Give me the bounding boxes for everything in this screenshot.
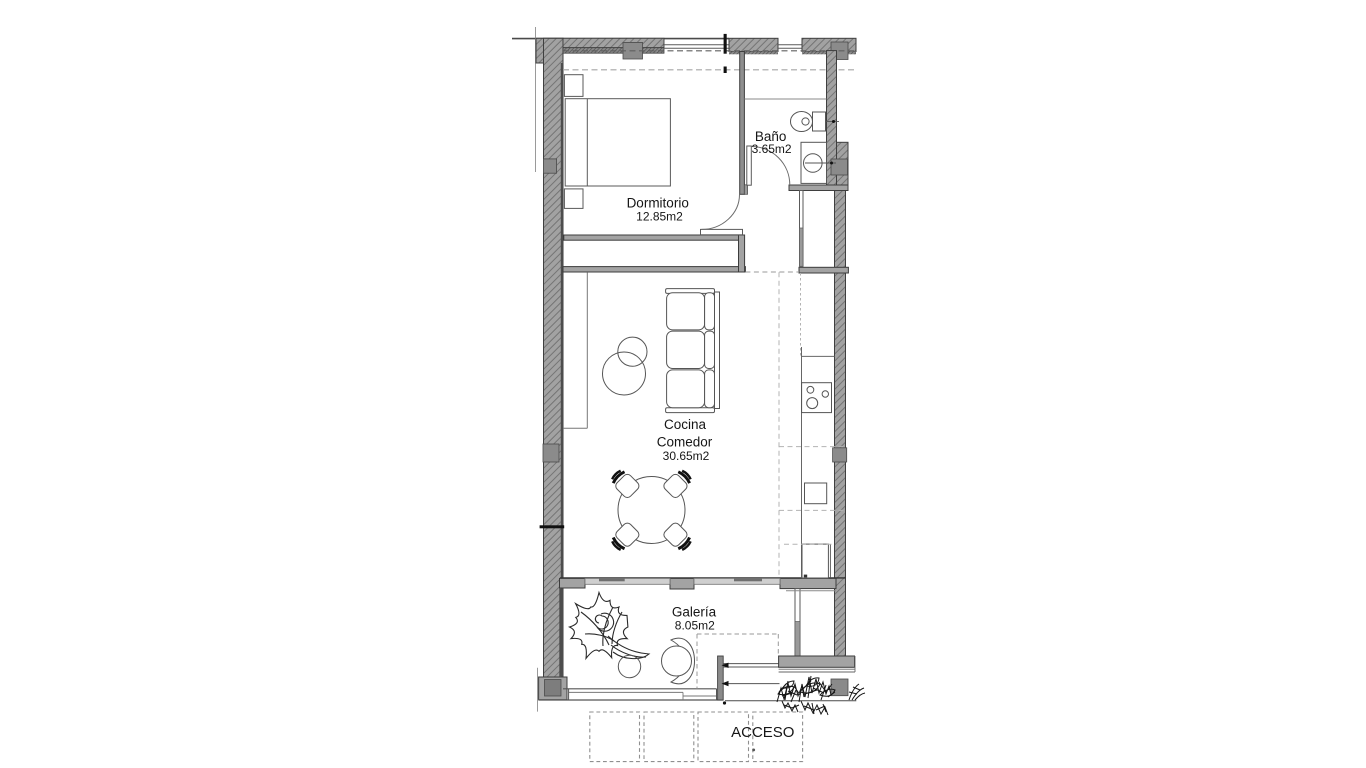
svg-text:Cocina: Cocina [664, 417, 707, 432]
svg-text:Comedor: Comedor [657, 435, 713, 450]
svg-text:8.05m2: 8.05m2 [675, 619, 715, 633]
svg-text:12.85m2: 12.85m2 [636, 209, 683, 223]
svg-text:Galería: Galería [672, 604, 717, 619]
svg-text:3.65m2: 3.65m2 [752, 142, 792, 156]
svg-text:30.65m2: 30.65m2 [663, 449, 710, 463]
svg-text:Dormitorio: Dormitorio [627, 196, 689, 211]
svg-text:ACCESO: ACCESO [731, 724, 794, 741]
